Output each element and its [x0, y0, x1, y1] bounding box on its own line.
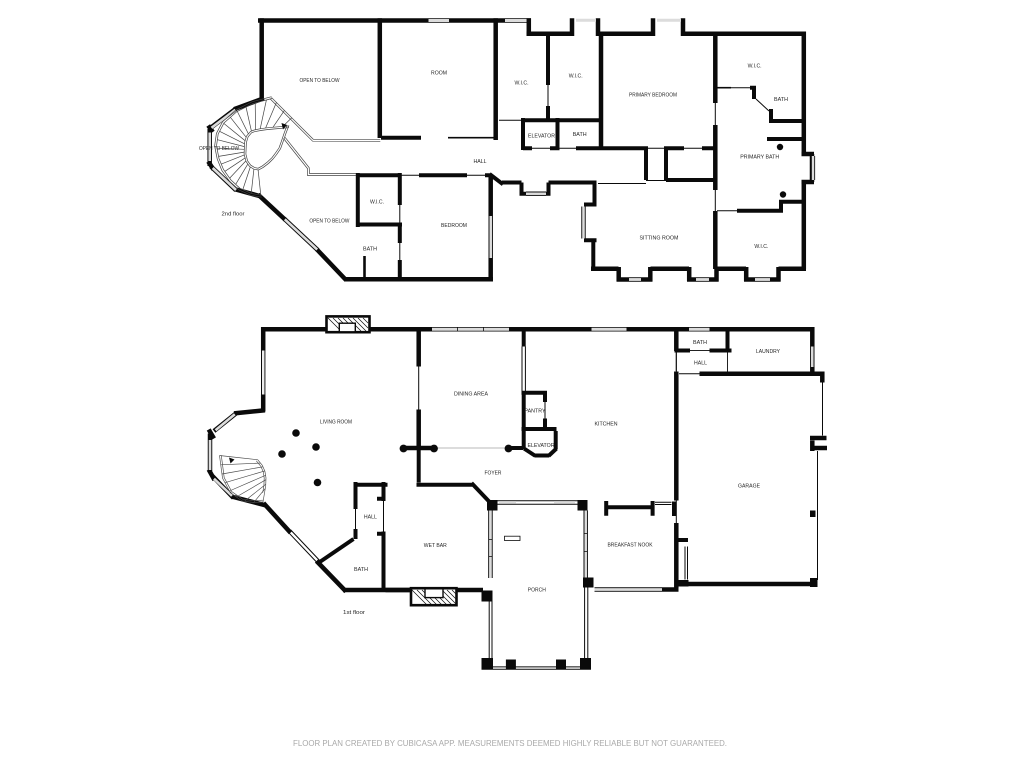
- svg-text:HALL: HALL: [474, 159, 487, 165]
- svg-text:W.I.C.: W.I.C.: [754, 244, 768, 250]
- svg-text:WET BAR: WET BAR: [424, 543, 447, 549]
- svg-text:HALL: HALL: [364, 515, 377, 521]
- svg-text:BATH: BATH: [693, 340, 707, 346]
- svg-text:GARAGE: GARAGE: [738, 484, 760, 490]
- svg-text:LAUNDRY: LAUNDRY: [756, 349, 780, 355]
- svg-text:BATH: BATH: [573, 132, 587, 138]
- svg-text:2nd floor: 2nd floor: [222, 212, 245, 218]
- svg-text:OPEN TO BELOW: OPEN TO BELOW: [199, 146, 240, 152]
- svg-text:HALL: HALL: [694, 361, 707, 367]
- svg-text:PRIMARY BATH: PRIMARY BATH: [740, 155, 779, 161]
- svg-text:LIVING ROOM: LIVING ROOM: [320, 420, 352, 426]
- svg-text:FOYER: FOYER: [485, 471, 502, 477]
- svg-text:OPEN TO BELOW: OPEN TO BELOW: [309, 219, 350, 225]
- svg-text:PRIMARY BEDROOM: PRIMARY BEDROOM: [629, 93, 677, 99]
- svg-text:PORCH: PORCH: [528, 588, 546, 594]
- svg-text:BREAKFAST NOOK: BREAKFAST NOOK: [608, 543, 653, 549]
- svg-text:ROOM: ROOM: [431, 71, 447, 77]
- svg-text:1st floor: 1st floor: [343, 610, 365, 616]
- svg-text:ELEVATOR: ELEVATOR: [528, 134, 555, 140]
- svg-text:FLOOR PLAN CREATED BY CUBICASA: FLOOR PLAN CREATED BY CUBICASA APP. MEAS…: [293, 739, 727, 748]
- svg-text:W.I.C.: W.I.C.: [569, 74, 583, 80]
- svg-text:BATH: BATH: [354, 567, 368, 573]
- svg-text:KITCHEN: KITCHEN: [595, 422, 618, 428]
- svg-text:PANTRY: PANTRY: [525, 409, 546, 415]
- svg-text:DINING AREA: DINING AREA: [454, 392, 488, 398]
- svg-text:W.I.C.: W.I.C.: [515, 81, 529, 87]
- svg-text:BATH: BATH: [774, 97, 788, 103]
- svg-text:W.I.C.: W.I.C.: [370, 200, 384, 206]
- svg-text:W.I.C.: W.I.C.: [748, 64, 762, 70]
- svg-text:SITTING ROOM: SITTING ROOM: [640, 236, 679, 242]
- svg-text:OPEN TO BELOW: OPEN TO BELOW: [300, 78, 341, 84]
- svg-text:BEDROOM: BEDROOM: [441, 223, 467, 229]
- svg-text:ELEVATOR: ELEVATOR: [528, 443, 555, 449]
- svg-text:BATH: BATH: [363, 247, 377, 253]
